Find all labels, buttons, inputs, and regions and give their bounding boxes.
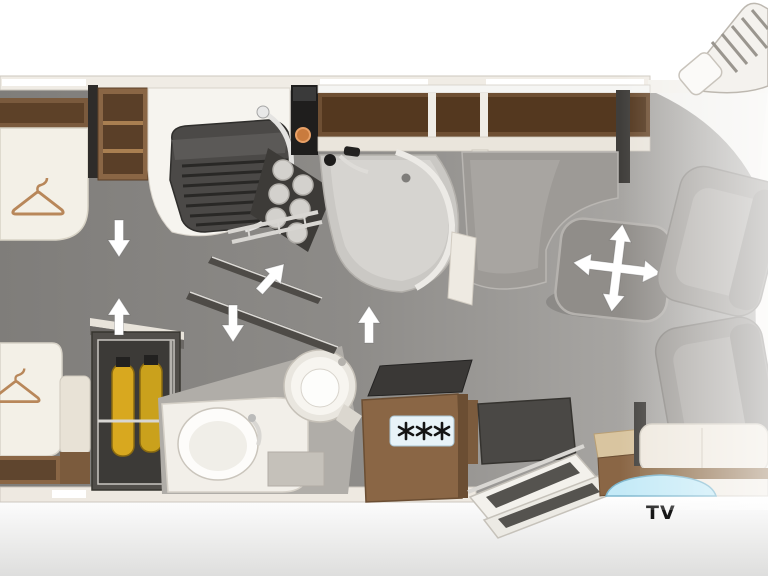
shower-drain <box>402 174 411 183</box>
fridge <box>362 360 472 502</box>
bed-headboard-inner <box>0 103 84 123</box>
cabinet-ledge <box>318 137 650 151</box>
bed-side-step-wood <box>60 452 90 484</box>
bed-side-step <box>60 376 90 454</box>
fridge-top-slab <box>368 360 472 396</box>
entrance-wood-edge <box>468 400 478 464</box>
washbasin-bowl <box>189 421 247 471</box>
toilet-flush-button <box>338 358 346 366</box>
freezer-rating-label <box>390 416 454 446</box>
fridge-front <box>362 394 462 502</box>
wardrobe-shelves <box>98 88 148 180</box>
oven-knob <box>296 128 310 142</box>
rail-knob <box>257 106 269 118</box>
sideboard-strip <box>318 85 650 151</box>
floorplan-canvas: TV <box>0 0 768 576</box>
faucet-base <box>248 414 256 422</box>
cabinet-divider <box>428 93 436 137</box>
oven-column <box>291 85 318 155</box>
shower-mixer <box>324 154 336 166</box>
gas-bottle <box>112 357 134 456</box>
bench-end-panel <box>448 232 476 305</box>
cab-fade-overlay <box>620 60 768 510</box>
cabinet-divider <box>480 93 488 137</box>
fridge-side <box>458 394 468 498</box>
vanity-inset <box>268 452 324 486</box>
wall-pillar <box>88 85 98 178</box>
floorplan-image: TV <box>0 0 768 576</box>
bed-base-inner <box>0 460 56 480</box>
bed-mattress <box>0 343 62 456</box>
